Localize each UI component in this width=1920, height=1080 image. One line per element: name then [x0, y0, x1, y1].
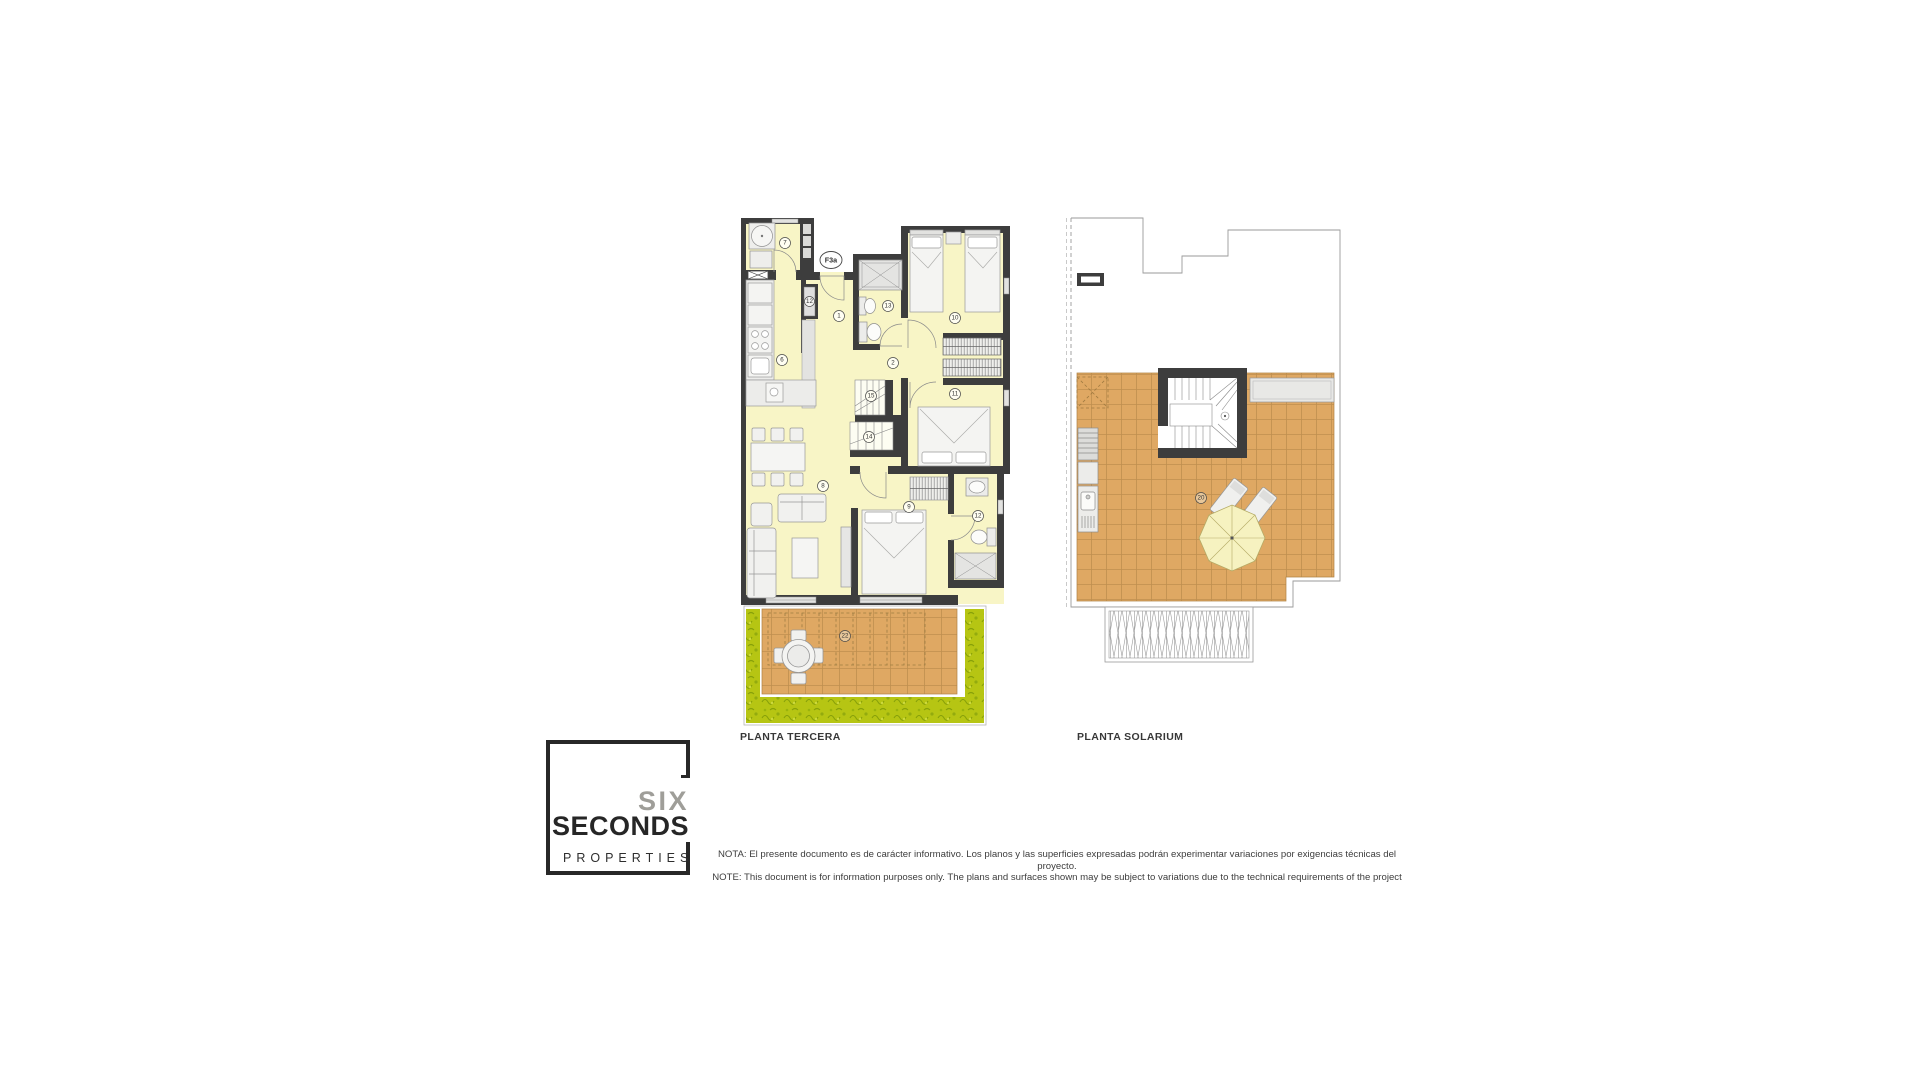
- room-number-6: 6: [777, 355, 788, 366]
- room-number-22: 22: [840, 631, 851, 642]
- terrace-grass-bottom: [746, 697, 984, 723]
- terrace-grass-left: [746, 609, 760, 699]
- sofa-three-seat: [747, 528, 776, 598]
- room-number-7: 7: [780, 238, 791, 249]
- svg-text:2: 2: [891, 360, 895, 367]
- utility-room: [749, 223, 775, 268]
- hob-icon: [748, 327, 772, 353]
- disclaimer-line-en: NOTE: This document is for information p…: [712, 872, 1402, 884]
- floor-plan-solarium: 20: [1062, 210, 1352, 670]
- svg-text:22: 22: [842, 633, 849, 640]
- room-number-20: 20: [1196, 493, 1207, 504]
- room-number-1: 1: [834, 311, 845, 322]
- svg-text:1: 1: [837, 313, 841, 320]
- plan-title-tercera: PLANTA TERCERA: [740, 731, 841, 743]
- parasol: [1199, 505, 1265, 571]
- svg-text:11: 11: [952, 391, 959, 398]
- room-number-9: 9: [904, 502, 915, 513]
- room-number-2: 2: [888, 358, 899, 369]
- logo-word-properties: PROPERTIES: [563, 852, 693, 865]
- utility-cabinet: [750, 251, 772, 268]
- window-bedroom-top: [1004, 278, 1009, 294]
- unit-label-circle: F3a: [820, 252, 842, 269]
- tv-unit: [841, 527, 851, 587]
- svg-text:20: 20: [1198, 495, 1205, 502]
- shaft-cells: [803, 224, 811, 258]
- disclaimer-line-es: NOTA: El presente documento es de caráct…: [712, 849, 1402, 872]
- svg-text:14: 14: [866, 434, 873, 441]
- terrace: [744, 606, 986, 725]
- pergola: [1105, 607, 1253, 662]
- window-utility: [772, 219, 798, 223]
- bench: [1250, 378, 1334, 402]
- room-number-14: 14: [864, 432, 875, 443]
- dining-set: [751, 428, 805, 486]
- plan-title-solarium: PLANTA SOLARIUM: [1077, 731, 1183, 743]
- disclaimer-note: NOTA: El presente documento es de caráct…: [712, 849, 1402, 884]
- room-number-8: 8: [818, 481, 829, 492]
- logo-border-tick: [681, 775, 690, 778]
- toilet-main: [987, 528, 996, 546]
- svg-text:F3a: F3a: [825, 256, 838, 265]
- chimney: [1077, 273, 1104, 286]
- svg-text:8: 8: [821, 483, 825, 490]
- room-number-12: 12: [973, 511, 984, 522]
- brand-logo: SIX SECONDS PROPERTIES: [546, 740, 690, 875]
- svg-text:12: 12: [806, 298, 813, 305]
- duct-x-box: [748, 271, 768, 279]
- logo-word-seconds: SECONDS: [552, 813, 689, 840]
- page: F3a 7 12 1 13 10 2 6 15 14 11 8 9 12 22: [0, 0, 1920, 1080]
- svg-text:15: 15: [868, 393, 875, 400]
- svg-text:10: 10: [952, 315, 959, 322]
- room-number-11: 11: [950, 389, 961, 400]
- svg-text:13: 13: [885, 303, 892, 310]
- room-number-13: 13: [883, 301, 894, 312]
- room-number-closet: 12: [805, 297, 815, 307]
- room-number-10: 10: [950, 313, 961, 324]
- window-bedroom-mid: [1004, 390, 1009, 406]
- floor-plan-tercera: F3a 7 12 1 13 10 2 6 15 14 11 8 9 12 22: [738, 210, 1010, 730]
- nightstand: [946, 232, 961, 244]
- bedroom-mid-furniture: [918, 407, 990, 466]
- svg-text:7: 7: [783, 240, 787, 247]
- window-bath-main: [998, 500, 1003, 514]
- toilet-icon: [859, 322, 867, 342]
- svg-text:6: 6: [780, 357, 784, 364]
- room-number-15: 15: [866, 391, 877, 402]
- outdoor-kitchen: [1078, 428, 1098, 532]
- coffee-table: [792, 538, 818, 578]
- svg-text:12: 12: [975, 513, 982, 520]
- svg-text:9: 9: [907, 504, 911, 511]
- armchair: [751, 503, 772, 526]
- stair-enclosure: [1158, 368, 1247, 458]
